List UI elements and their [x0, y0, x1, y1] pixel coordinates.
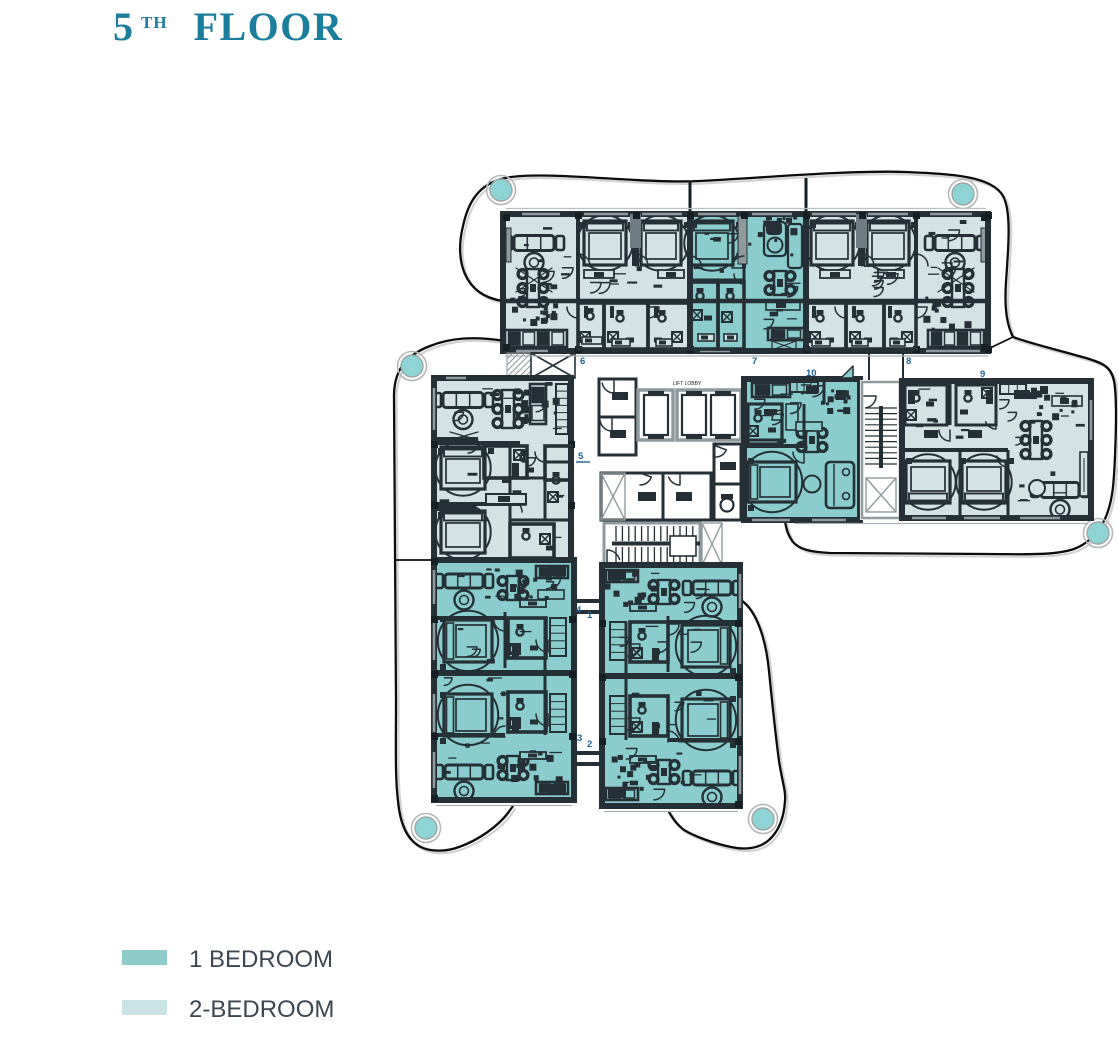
- svg-text:10: 10: [806, 368, 817, 379]
- svg-text:5: 5: [578, 451, 584, 462]
- svg-text:3: 3: [577, 733, 582, 744]
- svg-text:1: 1: [587, 610, 593, 621]
- svg-text:4: 4: [576, 605, 582, 616]
- svg-text:2-BEDROOM: 2-BEDROOM: [189, 996, 334, 1023]
- svg-text:6: 6: [580, 356, 585, 367]
- svg-text:LIFT LOBBY: LIFT LOBBY: [673, 381, 702, 387]
- svg-text:1 BEDROOM: 1 BEDROOM: [189, 946, 333, 973]
- svg-text:2: 2: [587, 739, 592, 750]
- svg-text:9: 9: [980, 369, 985, 380]
- svg-text:8: 8: [906, 356, 911, 367]
- svg-text:7: 7: [752, 356, 757, 367]
